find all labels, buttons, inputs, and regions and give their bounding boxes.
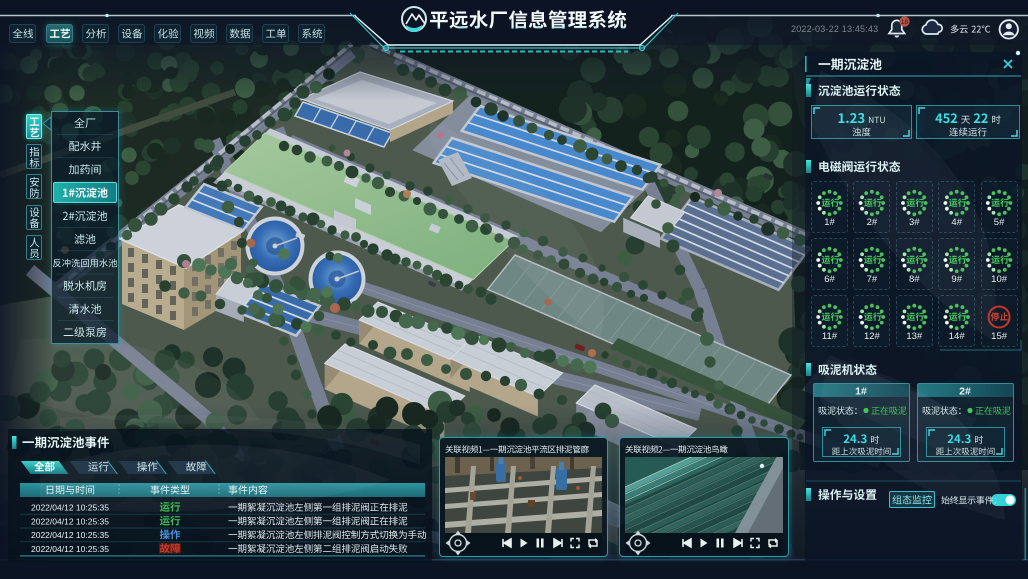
svg-text:8#: 8# [909,274,920,285]
svg-text:2022/04/12 10:25:35: 2022/04/12 10:25:35 [31,530,109,540]
svg-text:11#: 11# [822,331,838,342]
svg-text:2#: 2# [867,217,878,228]
svg-text:3#: 3# [909,217,920,228]
svg-text:1#: 1# [855,386,867,398]
svg-text:4#: 4# [951,217,962,228]
svg-text:10#: 10# [991,274,1008,285]
svg-text:2022/04/12 10:25:35: 2022/04/12 10:25:35 [31,503,109,513]
svg-text:15#: 15# [991,331,1008,342]
svg-text:2022/04/12 10:25:35: 2022/04/12 10:25:35 [31,544,109,554]
svg-text:5#: 5# [994,217,1005,228]
svg-text:14#: 14# [949,331,966,342]
svg-text:7#: 7# [867,274,878,285]
svg-text:2#: 2# [959,386,971,398]
svg-text:9#: 9# [951,274,962,285]
svg-text:1#: 1# [824,217,835,228]
svg-text:12#: 12# [864,331,881,342]
svg-text:6#: 6# [824,274,835,285]
svg-text:2022/04/12 10:25:35: 2022/04/12 10:25:35 [31,516,109,526]
svg-text:18: 18 [901,19,909,26]
svg-text:13#: 13# [906,331,923,342]
